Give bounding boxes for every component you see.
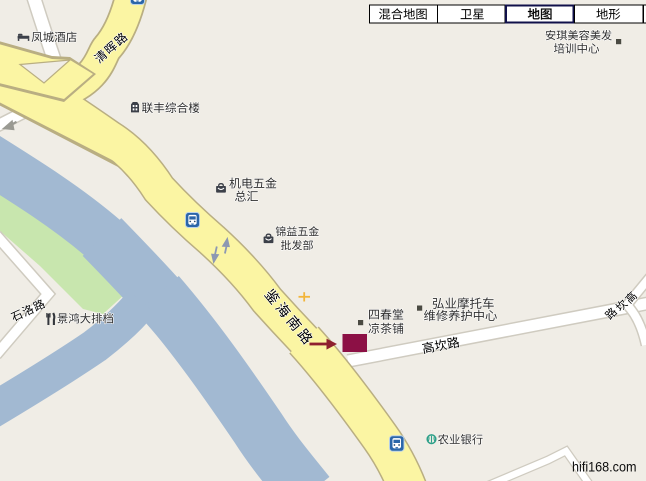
svg-text:hifi168.com: hifi168.com: [572, 459, 637, 475]
